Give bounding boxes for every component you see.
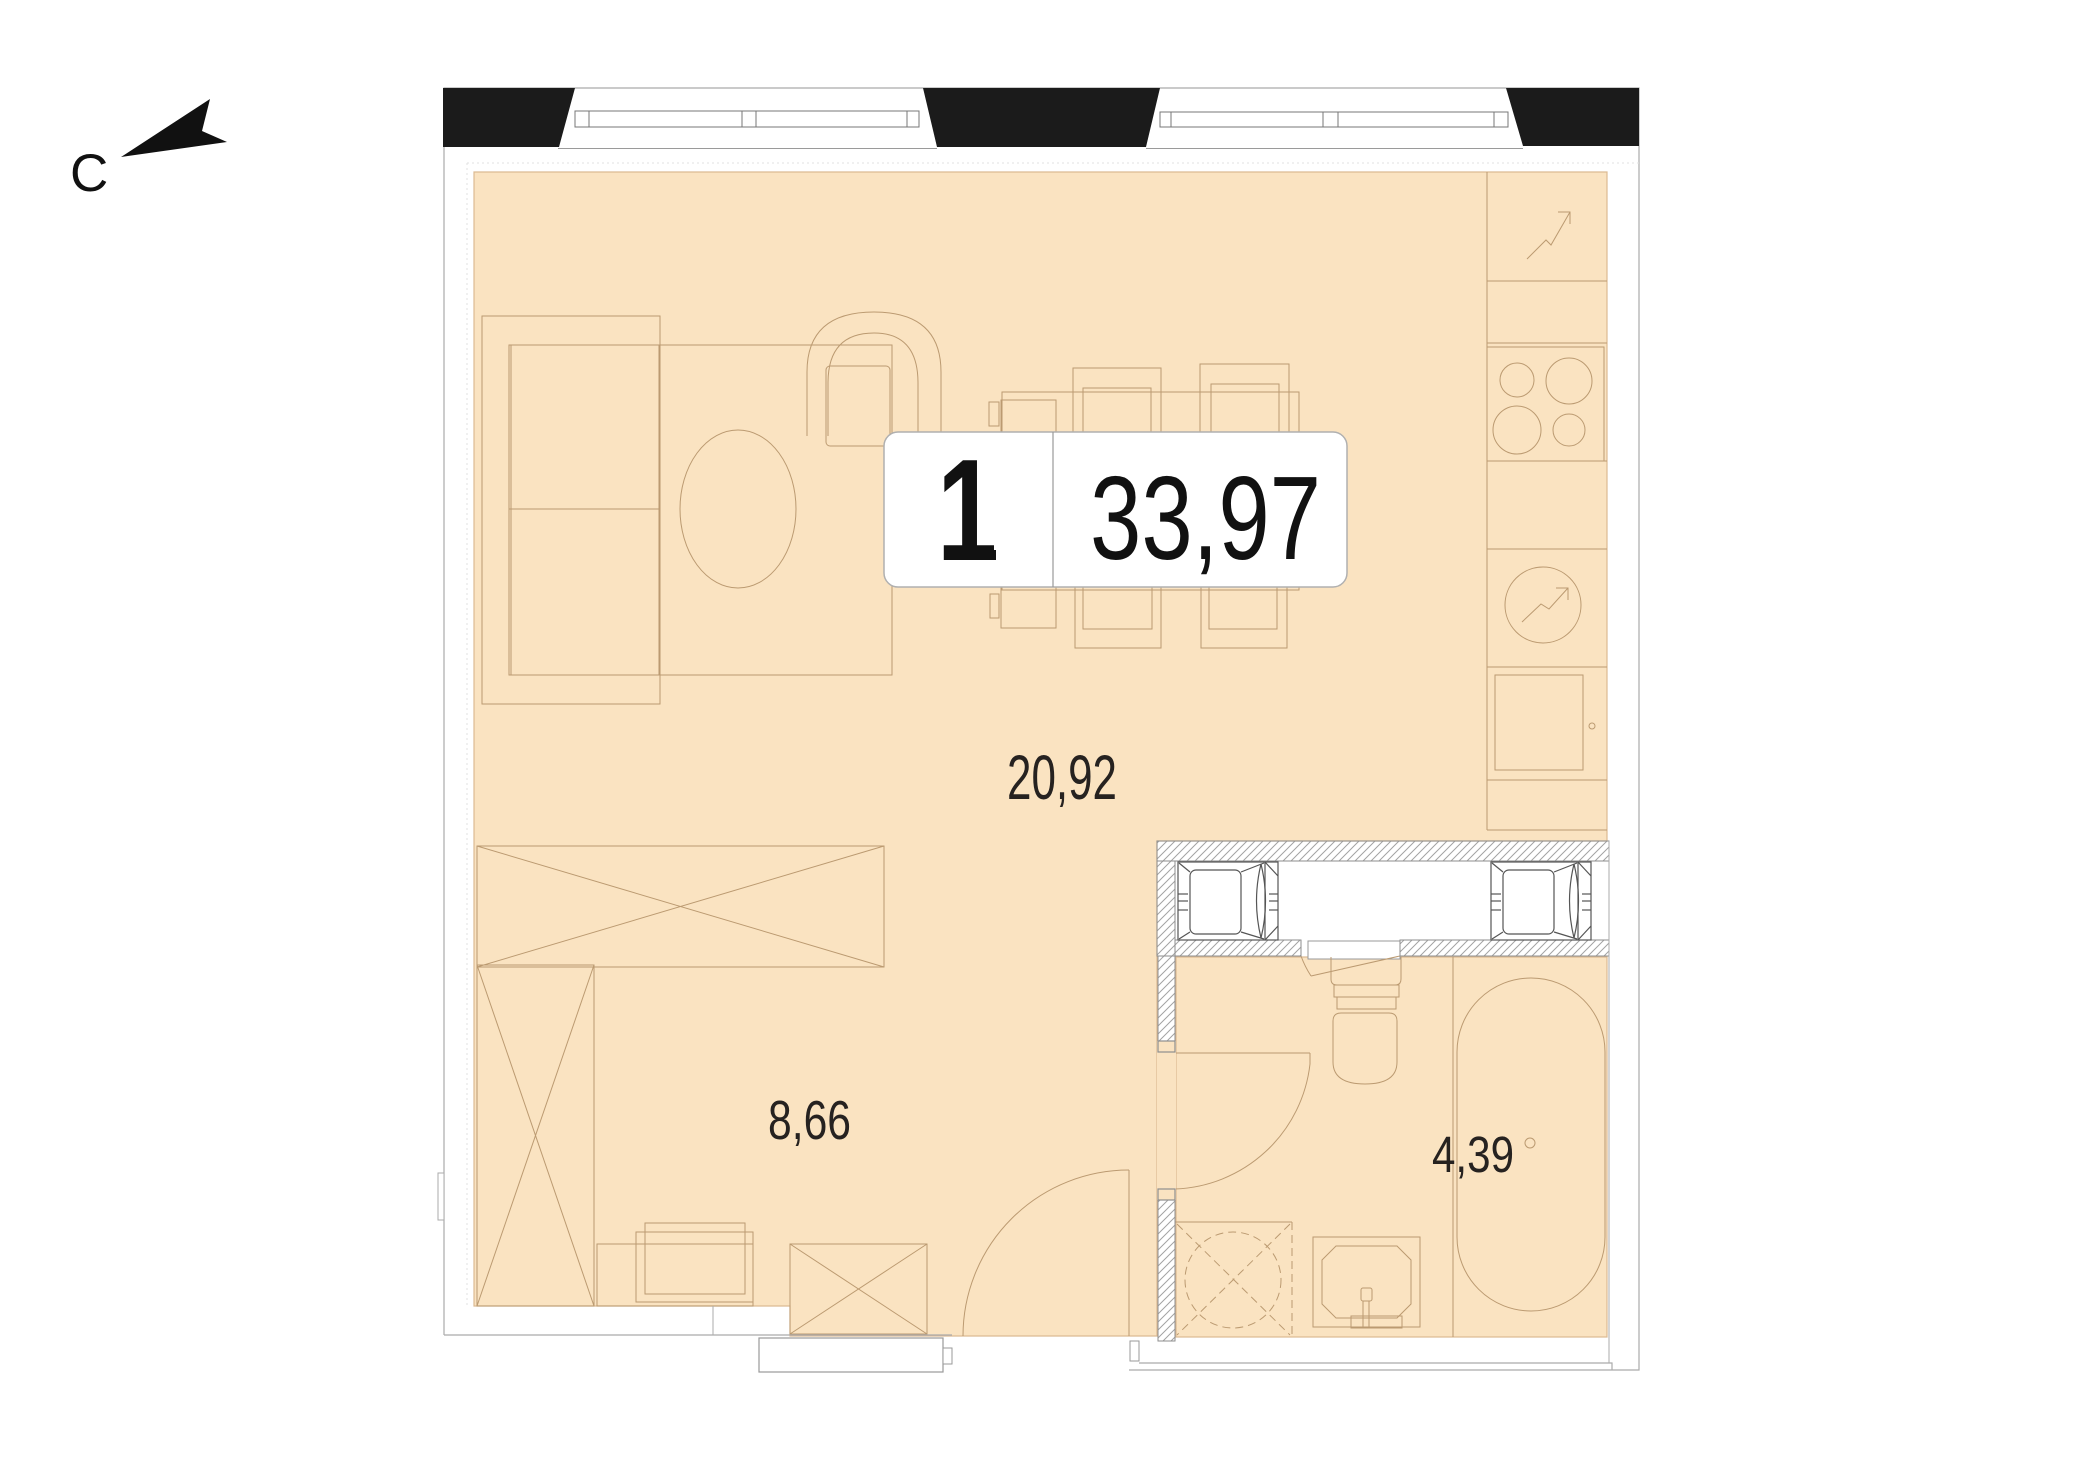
svg-text:1: 1 (937, 429, 997, 591)
svg-text:8,66: 8,66 (768, 1089, 851, 1151)
svg-text:С: С (70, 144, 108, 203)
svg-text:33,97: 33,97 (1090, 452, 1321, 585)
svg-text:20,92: 20,92 (1007, 743, 1117, 813)
svg-text:4,39: 4,39 (1432, 1126, 1514, 1183)
